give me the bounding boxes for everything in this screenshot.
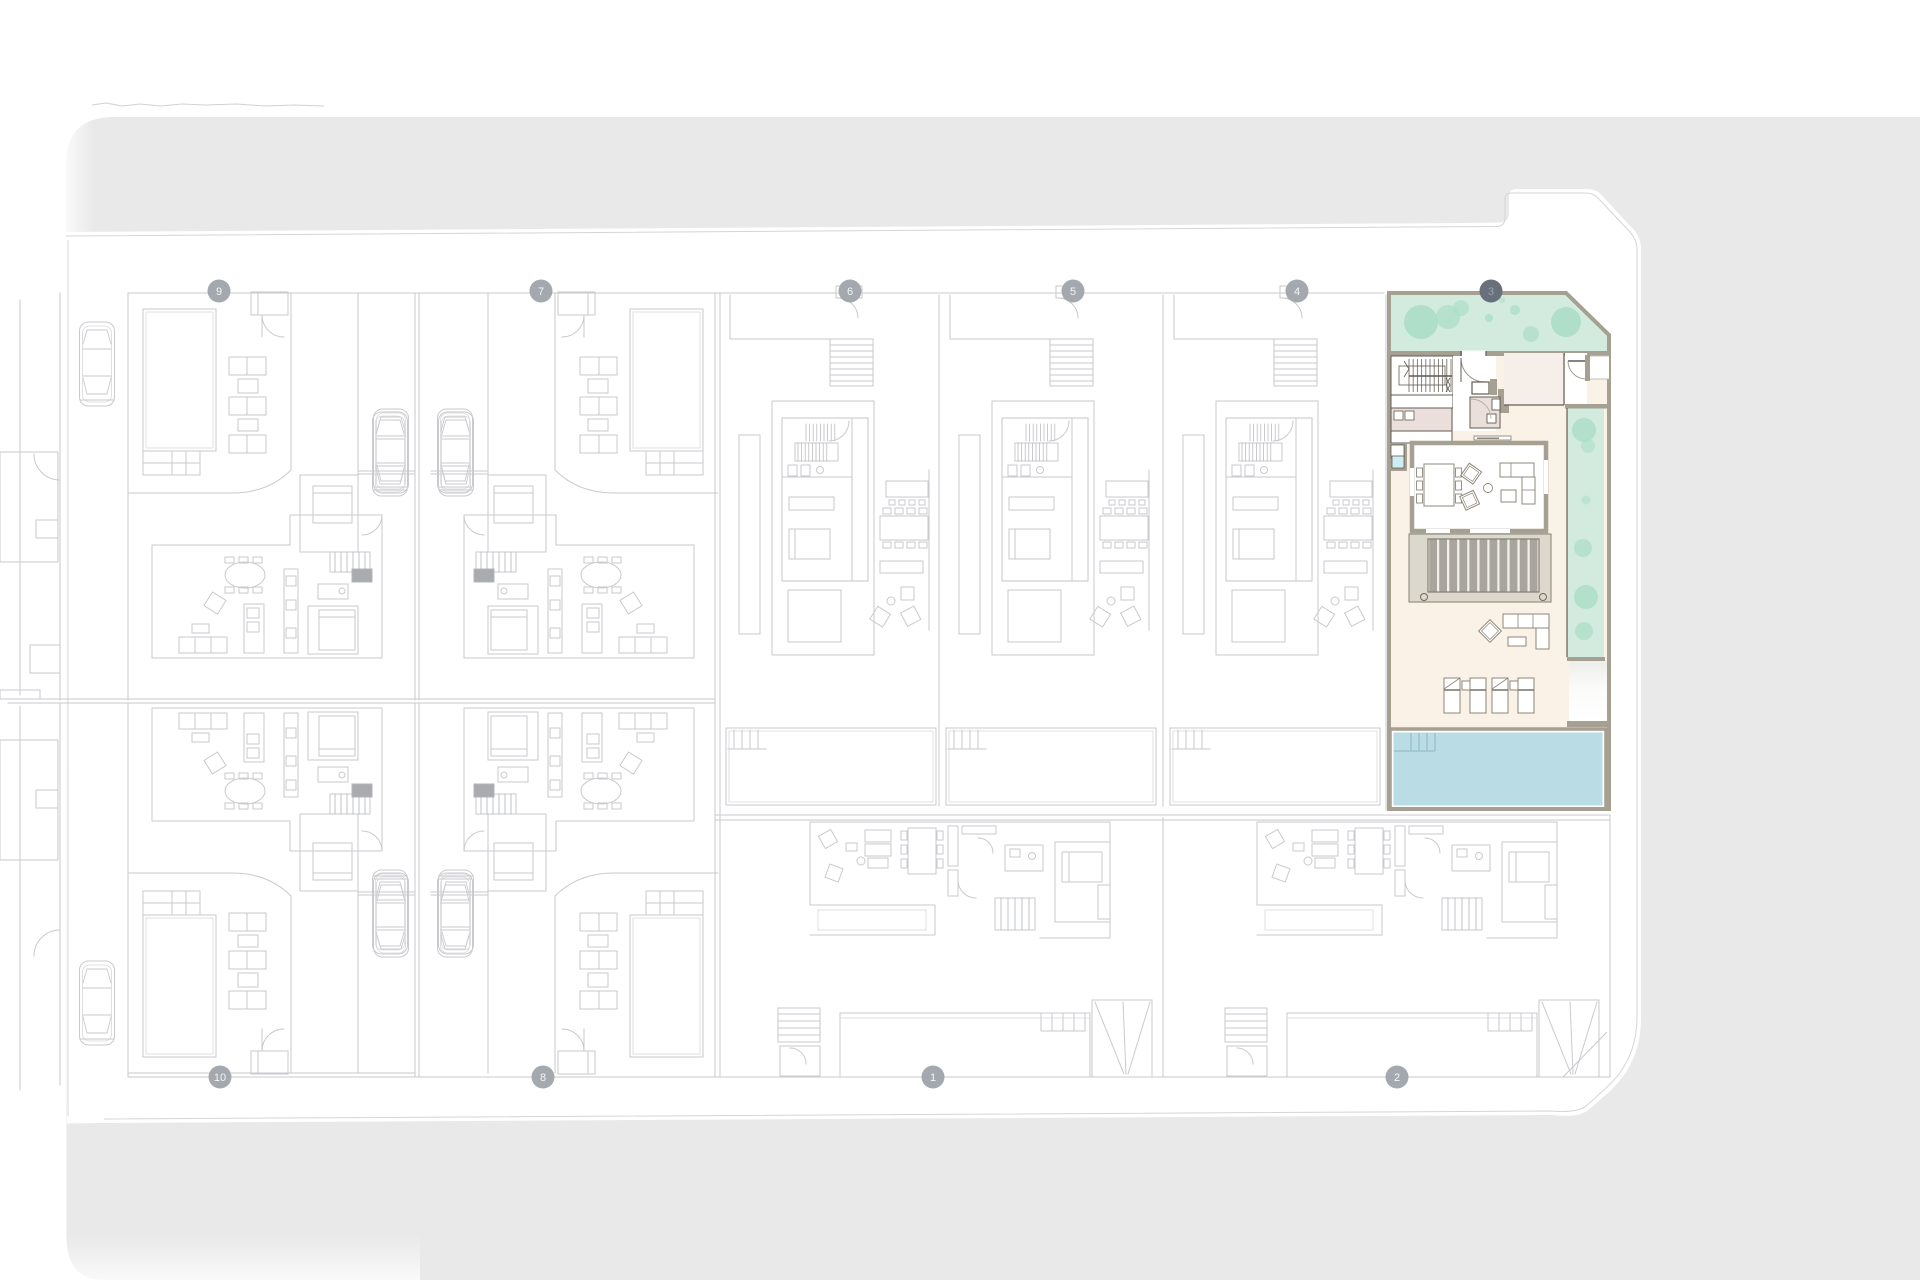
svg-text:6: 6: [847, 286, 853, 298]
svg-text:1: 1: [930, 1072, 936, 1084]
svg-text:3: 3: [1488, 286, 1494, 298]
svg-text:8: 8: [540, 1072, 546, 1084]
svg-text:5: 5: [1070, 286, 1076, 298]
svg-text:4: 4: [1294, 286, 1300, 298]
svg-text:10: 10: [214, 1072, 226, 1084]
svg-text:2: 2: [1394, 1072, 1400, 1084]
svg-text:9: 9: [216, 286, 222, 298]
svg-text:7: 7: [538, 286, 544, 298]
